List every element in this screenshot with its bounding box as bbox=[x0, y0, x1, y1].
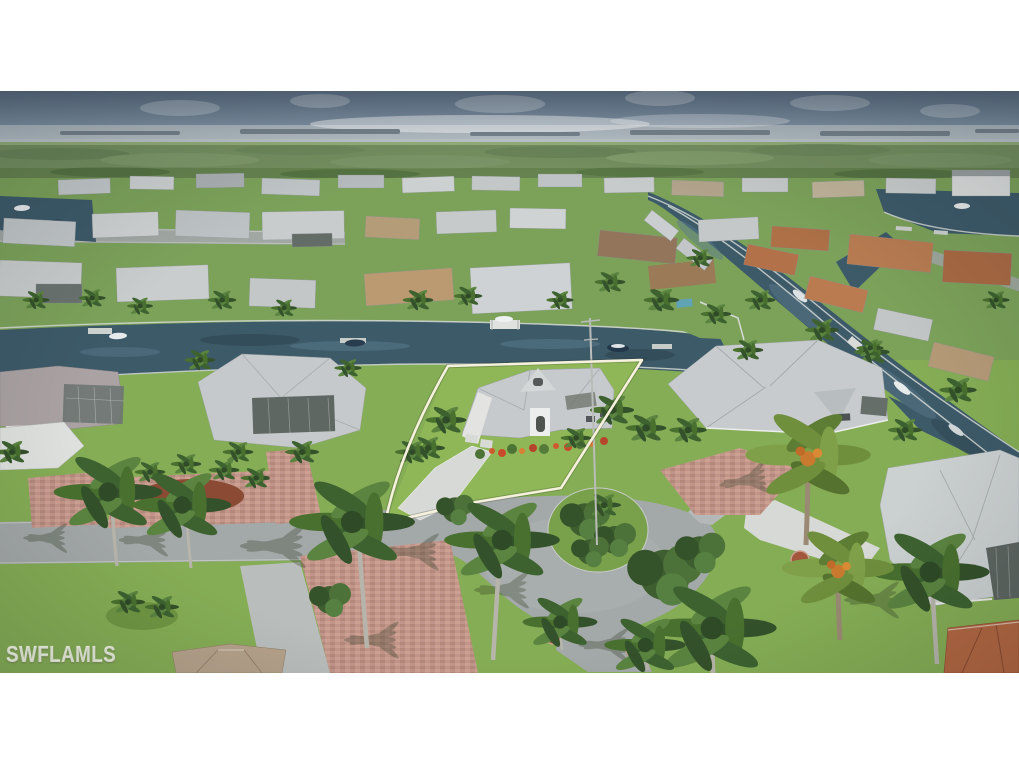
aerial-photo bbox=[0, 0, 1019, 764]
letterbox-bottom bbox=[0, 673, 1019, 764]
vignette bbox=[0, 91, 1019, 673]
listing-photo-page: SWFLAMLS bbox=[0, 0, 1019, 764]
letterbox-top bbox=[0, 0, 1019, 91]
